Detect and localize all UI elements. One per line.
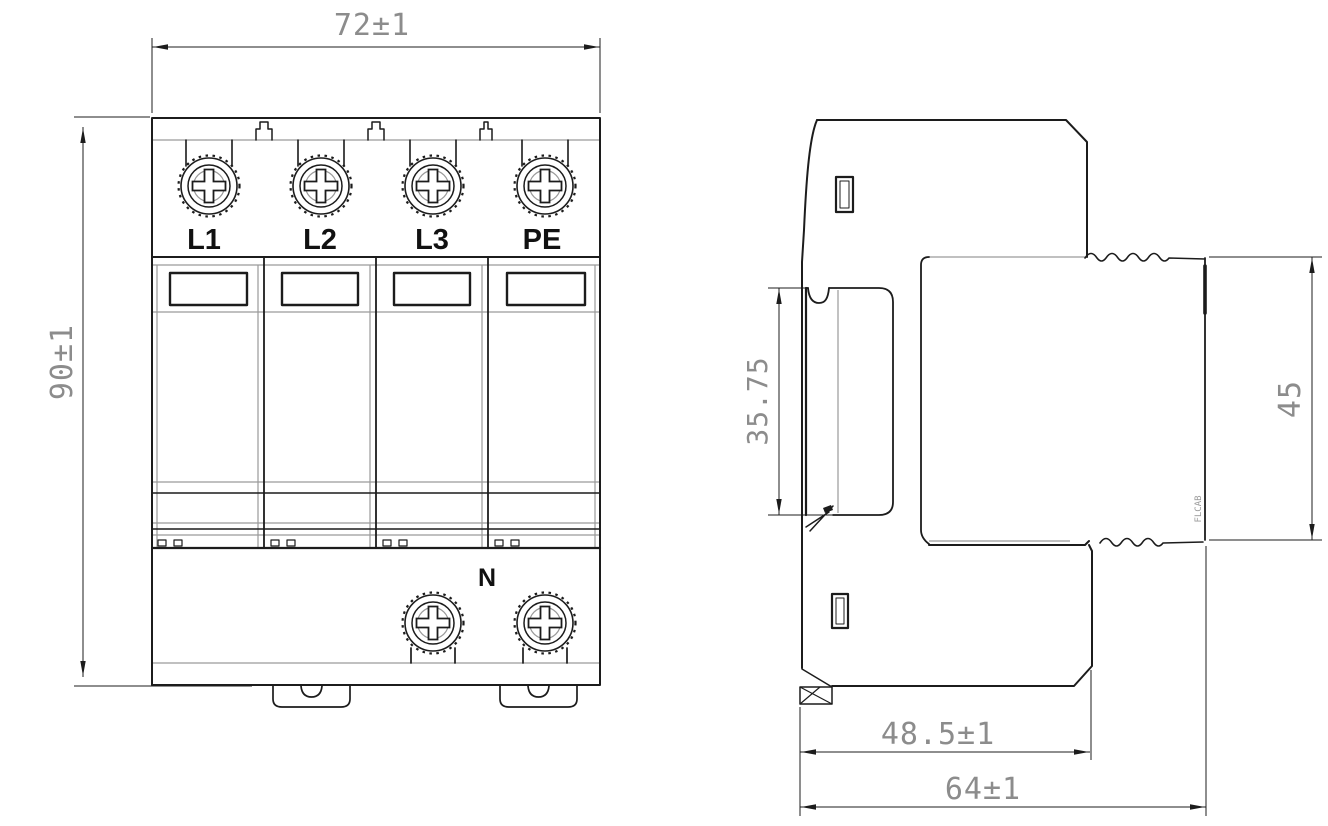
dim-overall-height: 90±1 — [45, 324, 80, 400]
terminal-label-n: N — [478, 564, 496, 592]
screw-n2 — [515, 593, 576, 654]
terminal-screws — [179, 156, 576, 654]
terminal-labels: L1 L2 L3 PE N — [187, 224, 561, 592]
terminal-label-l2: L2 — [303, 224, 337, 256]
screw-l3 — [403, 156, 464, 217]
dimension-texts: 72±1 90±1 35.75 45 48.5±1 64±1 — [45, 8, 1308, 807]
drawing-sheet: 72±1 90±1 35.75 45 48.5±1 64±1 L1 L2 L3 … — [0, 0, 1328, 826]
screw-n1 — [403, 593, 464, 654]
dimension-arrowheads — [80, 44, 1314, 809]
dim-rail-recess-height: 35.75 — [741, 356, 774, 445]
thin-gray-lines — [152, 140, 1085, 663]
technical-drawing: 72±1 90±1 35.75 45 48.5±1 64±1 L1 L2 L3 … — [0, 0, 1328, 826]
screw-l1 — [179, 156, 240, 217]
molded-marking-text: FLCAB — [1194, 495, 1204, 522]
side-view — [800, 120, 1205, 704]
terminal-label-l3: L3 — [415, 224, 449, 256]
screw-l2 — [291, 156, 352, 217]
dim-overall-width: 72±1 — [334, 8, 410, 43]
module-release-tabs — [158, 540, 519, 546]
dimension-lines — [74, 38, 1322, 816]
screw-pe — [515, 156, 576, 217]
dim-module-height: 45 — [1273, 380, 1308, 418]
terminal-label-pe: PE — [523, 224, 562, 256]
dim-base-depth: 48.5±1 — [881, 717, 995, 752]
dim-overall-depth: 64±1 — [945, 772, 1021, 807]
terminal-label-l1: L1 — [187, 224, 221, 256]
